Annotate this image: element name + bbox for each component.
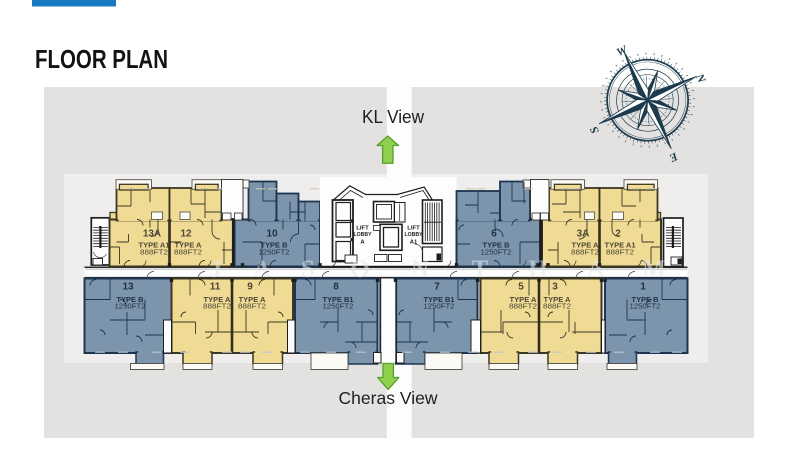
svg-text:9: 9 (247, 282, 253, 293)
svg-text:1250FT2: 1250FT2 (323, 302, 354, 311)
svg-text:8: 8 (333, 282, 339, 293)
svg-text:LIFT: LIFT (407, 226, 420, 232)
svg-text:A: A (253, 256, 271, 283)
svg-text:6: 6 (491, 229, 497, 240)
svg-text:888FT2: 888FT2 (140, 248, 168, 257)
svg-text:KL View: KL View (362, 107, 425, 127)
svg-text:LOBBY: LOBBY (405, 232, 423, 238)
svg-text:888FT2: 888FT2 (238, 302, 266, 311)
svg-text:FLOOR PLAN: FLOOR PLAN (35, 44, 168, 74)
svg-text:1: 1 (640, 282, 646, 293)
svg-text:M: M (642, 256, 666, 283)
svg-text:5: 5 (518, 282, 524, 293)
svg-text:3A: 3A (577, 229, 590, 240)
svg-text:Cheras View: Cheras View (339, 388, 438, 408)
svg-text:7: 7 (434, 282, 440, 293)
svg-text:J: J (210, 256, 223, 283)
svg-text:888FT2: 888FT2 (543, 302, 571, 311)
svg-text:12: 12 (180, 229, 192, 240)
svg-text:N: N (411, 256, 429, 283)
svg-text:LIFT: LIFT (356, 226, 369, 232)
svg-text:LOBBY: LOBBY (354, 232, 372, 238)
svg-text:888FT2: 888FT2 (203, 302, 231, 311)
svg-text:888FT2: 888FT2 (174, 248, 202, 257)
svg-text:13A: 13A (143, 229, 161, 240)
svg-text:O: O (350, 256, 369, 283)
svg-text:2: 2 (615, 229, 621, 240)
svg-text:888FT2: 888FT2 (509, 302, 537, 311)
svg-text:1250FT2: 1250FT2 (115, 302, 146, 311)
svg-text:888FT2: 888FT2 (606, 248, 634, 257)
svg-text:11: 11 (210, 282, 221, 293)
svg-text:3: 3 (552, 282, 558, 293)
svg-text:S: S (301, 256, 315, 283)
svg-text:1250FT2: 1250FT2 (630, 302, 661, 311)
svg-text:13: 13 (122, 282, 134, 293)
svg-text:T: T (472, 256, 489, 283)
svg-text:10: 10 (266, 229, 278, 240)
svg-text:1250FT2: 1250FT2 (424, 302, 455, 311)
